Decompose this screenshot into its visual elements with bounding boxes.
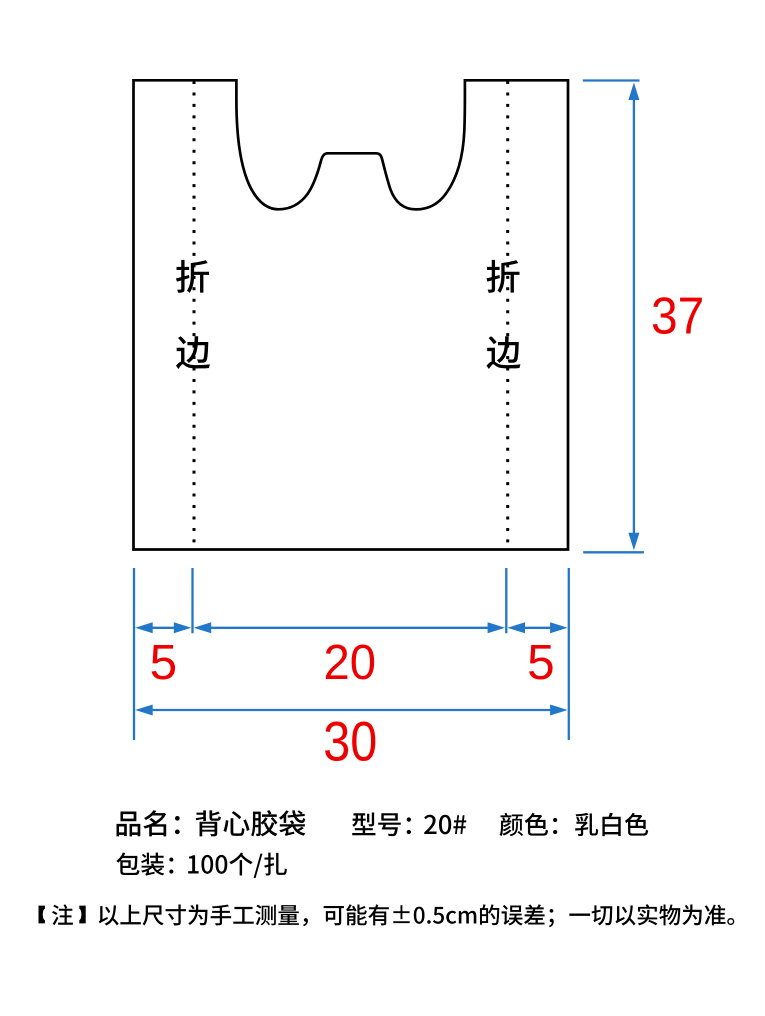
svg-text:5: 5 (527, 635, 555, 690)
svg-text:30: 30 (323, 711, 377, 773)
svg-text:5: 5 (150, 635, 178, 690)
svg-text:20: 20 (324, 635, 377, 690)
svg-text:37: 37 (651, 288, 704, 346)
